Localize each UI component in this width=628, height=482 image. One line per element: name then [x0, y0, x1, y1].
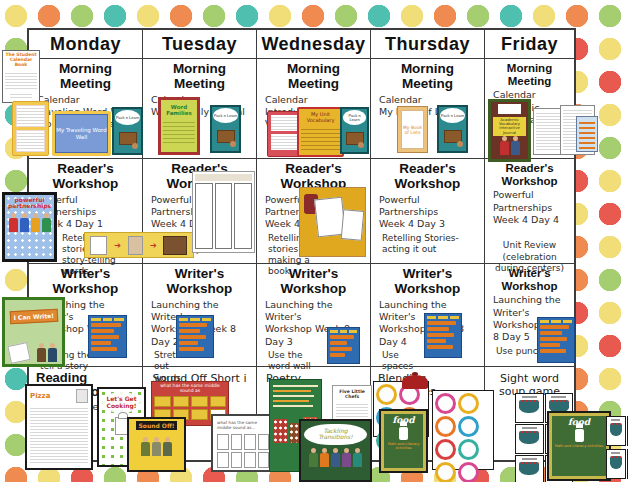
grid-box	[258, 434, 270, 450]
pocket-chart-thumbnail	[176, 315, 214, 358]
panel	[234, 183, 252, 249]
note-text: Retelling Stories-acting it out	[382, 233, 481, 256]
unit-line: Launching the Writer's	[265, 299, 367, 324]
day-label: Monday	[50, 35, 121, 53]
banner: Academic Vocabulary Interactive Journal	[493, 117, 526, 136]
kid-figure	[37, 348, 46, 362]
superhero-kid	[20, 218, 29, 232]
tackling-transitions-poster-thumbnail: Tackling Transitions!	[299, 419, 372, 482]
section-heading: Morning Meeting	[260, 62, 367, 92]
prop-photo	[163, 236, 187, 255]
prop-photo	[90, 236, 107, 255]
book-of-lists-thumbnail: My Book of Lists	[397, 106, 428, 153]
blue-card-thumbnail	[576, 116, 598, 152]
kid-figure	[353, 453, 362, 467]
phoneme-circle	[435, 416, 456, 437]
pack-n-learn-thumbnail: Pack n Learn	[210, 105, 241, 153]
kid-figure	[48, 348, 57, 362]
kid-figure	[500, 141, 509, 155]
phoneme-circle	[435, 462, 456, 482]
poem-line	[273, 405, 313, 407]
soup-word-card	[606, 416, 626, 446]
soldier-kid	[163, 442, 172, 456]
activity-line: Calendar	[265, 94, 367, 106]
grid-box	[258, 452, 270, 468]
poem-line	[273, 400, 309, 402]
retelling-card	[341, 209, 365, 241]
tag-card	[498, 104, 521, 114]
soup-word-card	[515, 393, 544, 423]
card-rows	[579, 119, 595, 149]
grid-box	[231, 434, 243, 450]
day-header-friday: Friday	[485, 30, 574, 59]
acting-it-out-photo-thumbnail	[299, 187, 366, 257]
poem-line	[273, 390, 311, 392]
middle-sound-worksheet-thumbnail: what has the same middle sound as...	[211, 414, 275, 472]
kid-figure	[457, 141, 463, 147]
cloud-label: Pack n Learn	[343, 110, 366, 125]
day-header-monday: Monday	[29, 30, 143, 59]
phoneme-circle	[435, 393, 456, 414]
soldier-kid	[152, 442, 161, 456]
kid-figure	[342, 453, 351, 467]
phoneme-circle-card-thumbnail	[432, 390, 494, 470]
day-label: Thursday	[385, 35, 470, 53]
unit-vocabulary-folder-thumbnail: My Unit Vocabulary	[297, 107, 344, 157]
superhero-kid	[31, 218, 40, 232]
section-heading: Writer's Workshop	[146, 267, 253, 297]
cloud-label: Pack n Learn	[440, 108, 465, 123]
folder-page	[16, 130, 45, 152]
prop-photo	[128, 236, 143, 255]
day-header-tuesday: Tuesday	[143, 30, 257, 59]
chef-figure	[399, 427, 408, 440]
activity-line: Calendar	[37, 94, 139, 106]
book-shape	[7, 342, 30, 364]
cell-friday-reader: Reader's Workshop Powerful Partnerships …	[485, 159, 574, 264]
phoneme-circle	[458, 416, 479, 437]
letter-tile	[210, 396, 227, 407]
kid-figure	[320, 453, 329, 467]
sound-off-card-thumbnail: Sound Off!	[127, 417, 186, 472]
folder-page	[16, 105, 45, 127]
chef-clipart	[76, 389, 88, 403]
pizza-worksheet-thumbnail: Pizza	[25, 384, 93, 470]
letter-tile	[154, 396, 171, 407]
doodle-lines	[163, 119, 195, 145]
soup-word-card	[606, 449, 626, 479]
cloud-label: Pack n Learn	[213, 108, 238, 123]
section-heading: Morning Meeting	[488, 62, 571, 87]
week-line: Week 4 Day 3	[379, 218, 481, 230]
pack-n-learn-thumbnail: Pack n Learn	[340, 107, 369, 154]
section-heading: Reader's Workshop	[374, 162, 481, 192]
cloud-label: Pack n Learn	[115, 110, 140, 125]
grid-box	[231, 452, 243, 468]
pack-n-learn-thumbnail: Pack n Learn	[112, 107, 143, 155]
trifold-book-template-thumbnail	[192, 171, 255, 253]
section-heading: Reader's Workshop	[32, 162, 139, 192]
doodle-lines	[301, 126, 340, 150]
poster-subtitle: Math and Literacy Activities	[552, 444, 606, 448]
academic-vocabulary-bundle-thumbnail: Academic Vocabulary Interactive Journal	[488, 99, 531, 162]
building	[273, 419, 287, 443]
poster-banner: I Can Write!	[9, 309, 57, 324]
arrow-icon: ➔	[150, 241, 157, 250]
worksheet-lines	[536, 111, 563, 152]
scribble-lines	[10, 92, 32, 100]
section-heading: Writer's Workshop	[32, 267, 139, 297]
word-families-thumbnail: Word Families	[158, 97, 200, 155]
panel	[215, 183, 233, 249]
day-header-thursday: Thursday	[371, 30, 485, 59]
soup-word-card	[515, 424, 544, 454]
arrow-icon: ➔	[114, 241, 121, 250]
section-heading: Morning Meeting	[374, 62, 481, 92]
poem-line	[273, 385, 318, 387]
lesson-plan-page: Monday Tuesday Wednesday Thursday Friday…	[0, 0, 628, 482]
grid-box	[217, 452, 229, 468]
letter-tile	[191, 396, 208, 407]
template-header	[195, 174, 252, 181]
section-heading: Writer's Workshop	[374, 267, 481, 297]
superhero-kid	[42, 218, 51, 232]
section-heading: Morning Meeting	[146, 62, 253, 92]
phoneme-circle	[458, 439, 479, 460]
phoneme-circle	[376, 384, 397, 405]
unit-line: Powerful Partnerships	[493, 189, 571, 214]
scribble-lines	[5, 71, 37, 89]
writing-lines	[30, 406, 88, 464]
cell-thursday-reader: Reader's Workshop Powerful Partnerships …	[371, 159, 485, 264]
kid-figure	[132, 143, 138, 149]
pocket-chart-thumbnail	[327, 327, 360, 364]
soldier-kid	[141, 442, 150, 456]
kid-figure	[309, 453, 318, 467]
superhero-kid	[9, 218, 18, 232]
phoneme-circle	[435, 439, 456, 460]
poem-line	[273, 395, 314, 397]
pack-n-learn-thumbnail: Pack n Learn	[437, 105, 468, 153]
red-pot-icon	[402, 372, 428, 390]
student-calendar-book-thumbnail: The Student Calendar Book	[2, 50, 40, 103]
day-label: Friday	[501, 35, 558, 53]
chef-figure	[575, 429, 584, 442]
food-unit-poster-thumbnail: food Math and Literacy Activities	[379, 409, 428, 473]
section-heading: Reader's Workshop	[488, 162, 571, 187]
day-label: Wednesday	[261, 35, 365, 53]
powerful-partnerships-thumbnail: powerful partnerships	[2, 192, 57, 262]
grid-box	[217, 434, 229, 450]
phoneme-circle	[458, 462, 479, 482]
unit-line: Launching the Writer's	[493, 294, 571, 319]
folder-page	[271, 115, 297, 131]
pocket-chart-thumbnail	[88, 315, 127, 358]
retelling-props-strip-thumbnail: ➔ ➔	[84, 232, 194, 258]
section-heading: Writer's Workshop	[260, 267, 367, 297]
letter-tile	[191, 409, 208, 420]
unit-line: Powerful Partnerships	[379, 194, 481, 219]
letter-tile	[173, 396, 190, 407]
yellow-folder-thumbnail	[12, 101, 49, 156]
panel	[195, 183, 213, 249]
sight-word-soup-cards-thumbnail	[606, 416, 628, 480]
day-label: Tuesday	[162, 35, 237, 53]
phoneme-circle	[458, 393, 479, 414]
folder-page	[271, 134, 297, 150]
poster-subtitle: Math and Literacy Activities	[384, 442, 423, 450]
kid-figure	[511, 141, 520, 155]
pocket-chart-thumbnail	[424, 313, 462, 358]
grid-box	[244, 452, 256, 468]
week-line: Week 4 Day 4	[493, 214, 571, 226]
kid-figure	[331, 453, 340, 467]
traveling-word-wall-thumbnail: My Traveling Word Wall	[52, 111, 111, 156]
red-folder-thumbnail	[267, 111, 301, 157]
soup-word-card	[515, 455, 544, 482]
food-unit-poster-thumbnail: food Math and Literacy Activities	[547, 411, 611, 481]
kid-figure	[230, 141, 236, 147]
day-header-wednesday: Wednesday	[257, 30, 371, 59]
section-heading: Writer's Workshop	[488, 267, 571, 292]
grid-box	[244, 434, 256, 450]
kid-figure	[358, 142, 364, 148]
section-heading: Morning Meeting	[32, 62, 139, 92]
i-can-write-poster-thumbnail: I Can Write!	[2, 297, 65, 367]
pocket-chart-thumbnail	[537, 317, 575, 363]
